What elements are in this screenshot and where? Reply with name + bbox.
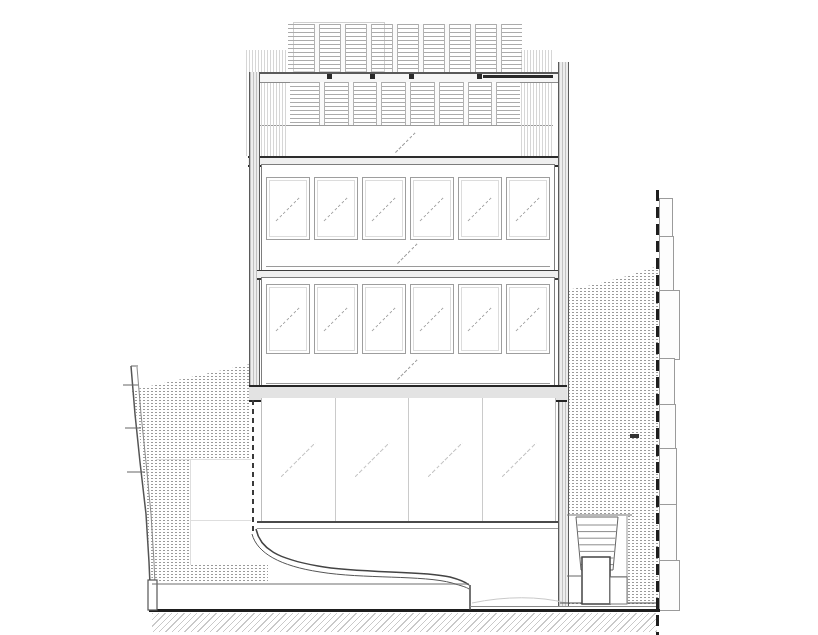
background-wall-line — [190, 520, 251, 521]
window-pane — [266, 177, 310, 240]
ground-hatch — [152, 613, 657, 632]
louver-post — [418, 24, 424, 74]
elevation-drawing — [0, 0, 818, 635]
glass-mark — [468, 307, 493, 332]
louver-post — [470, 24, 476, 74]
base-wall — [255, 526, 567, 609]
beam-dark-bar — [483, 75, 553, 78]
left-post — [148, 580, 157, 610]
louver-post — [434, 82, 440, 125]
glass-mark — [324, 196, 349, 221]
window-pane — [314, 177, 358, 240]
louver-post — [444, 24, 450, 74]
neighbor-building-segment — [659, 504, 677, 562]
parapet — [259, 125, 553, 157]
stair-opening — [567, 516, 627, 602]
glass-mark — [372, 196, 397, 221]
ground-glass-panel — [483, 398, 556, 521]
window-pane — [506, 177, 550, 240]
louver-post — [366, 24, 372, 74]
louver-post — [314, 24, 320, 74]
window-pane — [410, 284, 454, 354]
floor-1-windows — [266, 284, 550, 354]
neighbor-building-segment — [659, 560, 680, 611]
glass-mark — [397, 242, 419, 264]
glass-mark — [516, 196, 541, 221]
ground-floor-sill — [257, 521, 558, 529]
glass-mark — [276, 196, 301, 221]
glass-mark — [468, 196, 493, 221]
neighbor-building-segment — [659, 448, 677, 506]
beam-clamp — [327, 74, 332, 79]
right-column — [558, 62, 569, 607]
neighbor-building-segment — [659, 404, 676, 450]
wall-tie-marker — [630, 434, 639, 438]
glass-mark — [281, 442, 316, 477]
window-pane — [266, 284, 310, 354]
glass-mark — [428, 442, 463, 477]
beam-clamp — [370, 74, 375, 79]
neighbor-building-segment — [659, 236, 674, 292]
neighbor-building-right — [659, 0, 689, 635]
window-pane — [314, 284, 358, 354]
floor-1-spandrel — [266, 354, 550, 384]
roof-side-screen-right — [521, 50, 553, 156]
left-edge-dashed — [252, 400, 254, 534]
glass-mark — [395, 131, 417, 153]
beam-clamp — [409, 74, 414, 79]
neighbor-building-segment — [659, 198, 673, 238]
louver-post — [392, 24, 398, 74]
floor-2-spandrel — [266, 240, 550, 267]
ground-glass-panel — [336, 398, 410, 521]
glass-mark — [420, 307, 445, 332]
ground-glass-panel — [262, 398, 336, 521]
louver-post — [376, 82, 382, 125]
floor-2-windows — [266, 177, 550, 240]
ground-line — [149, 609, 660, 612]
property-boundary-line — [656, 190, 659, 635]
glass-mark — [354, 442, 389, 477]
window-pane — [410, 177, 454, 240]
window-pane — [458, 284, 502, 354]
louver-post — [491, 82, 497, 125]
floor-1 — [261, 277, 555, 387]
louver-post — [340, 24, 346, 74]
ground-floor-glazing — [261, 398, 556, 521]
louver-post — [463, 82, 469, 125]
louver-post — [319, 82, 325, 125]
background-wall-line — [190, 460, 191, 565]
neighbor-building-segment — [659, 290, 680, 360]
louver-post — [348, 82, 354, 125]
ground-glass-panel — [409, 398, 483, 521]
glass-mark — [372, 307, 397, 332]
beam-clamp — [477, 74, 482, 79]
glass-mark — [420, 196, 445, 221]
roof-louvers-upper — [288, 24, 522, 74]
window-pane — [506, 284, 550, 354]
window-pane — [362, 284, 406, 354]
left-column — [249, 72, 260, 398]
glass-mark — [324, 307, 349, 332]
roof-louvers-lower — [290, 82, 520, 125]
glass-mark — [516, 307, 541, 332]
window-pane — [362, 177, 406, 240]
glass-mark — [276, 307, 301, 332]
louver-post — [496, 24, 502, 74]
neighbor-building-segment — [659, 358, 675, 406]
background-wall-line — [156, 459, 251, 460]
louver-post — [405, 82, 411, 125]
window-pane — [458, 177, 502, 240]
glass-mark — [397, 358, 419, 380]
glass-mark — [501, 442, 536, 477]
floor-2 — [261, 164, 555, 272]
